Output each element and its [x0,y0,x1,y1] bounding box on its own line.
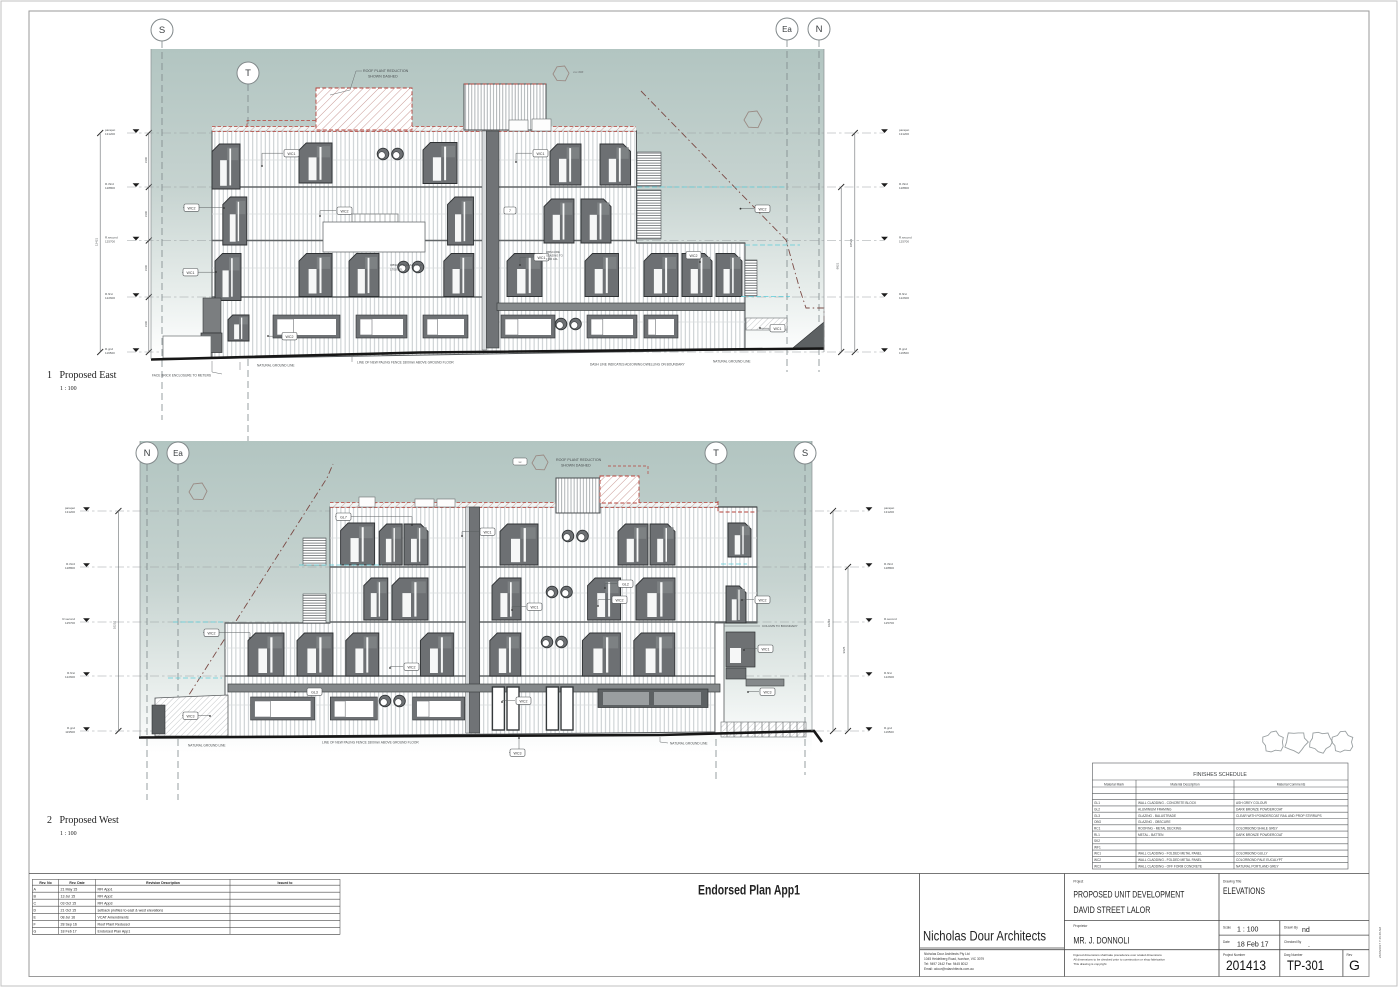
svg-text:18 Feb 17: 18 Feb 17 [61,930,77,934]
svg-text:122600: 122600 [899,296,909,300]
svg-text:3100: 3100 [144,156,148,163]
svg-text:WC1: WC1 [762,647,770,651]
svg-text:WC2: WC2 [759,207,767,211]
svg-text:COLORBOND PALE EUCALYPT: COLORBOND PALE EUCALYPT [1236,858,1283,862]
svg-text:setback profiles to east & wes: setback profiles to east & west elevatio… [98,909,164,913]
svg-text:NATURAL GROUND LINE: NATURAL GROUND LINE [257,364,295,368]
svg-text:T: T [245,68,251,79]
svg-text:GL3: GL3 [311,690,318,694]
svg-text:.: . [1308,942,1310,949]
svg-text:13 Jul 15: 13 Jul 15 [61,895,76,899]
svg-text:WC2: WC2 [1094,858,1101,862]
svg-text:COLORBOND GULLY: COLORBOND GULLY [1236,852,1269,856]
svg-text:WC2: WC2 [286,335,294,339]
svg-text:OBSCURE GLAZING TO: OBSCURE GLAZING TO [390,263,424,267]
svg-text:SHOWN DASHED: SHOWN DASHED [368,75,398,79]
svg-text:WC2: WC2 [188,206,196,210]
svg-text:Email: odour@ndarchitects.com: Email: odour@ndarchitects.com.au [924,967,974,971]
svg-text:nd: nd [1302,927,1310,934]
svg-text:WALL CLADDING - FOLDED METAL P: WALL CLADDING - FOLDED METAL PANEL [1138,858,1202,862]
svg-text:N: N [144,448,151,459]
svg-text:PROPOSED UNIT DEVELOPMENT: PROPOSED UNIT DEVELOPMENT [1073,890,1184,901]
svg-text:119500: 119500 [884,730,894,734]
svg-text:10210: 10210 [113,620,117,629]
svg-text:Tel: 9497 2442 Fax: 9445 8: Tel: 9497 2442 Fax: 9445 8012 [924,962,968,966]
svg-text:C: C [34,902,37,906]
svg-text:08 Jul 16: 08 Jul 16 [61,916,76,920]
svg-text:GL7: GL7 [340,515,347,519]
svg-text:NATURAL GROUND LINE: NATURAL GROUND LINE [713,360,751,364]
svg-text:131200: 131200 [884,510,894,514]
svg-text:WF1: WF1 [1094,845,1101,849]
svg-text:WC3: WC3 [514,751,522,755]
svg-text:TP-301: TP-301 [1287,957,1324,973]
svg-text:Material Mark: Material Mark [1104,782,1124,786]
svg-text:125700: 125700 [899,240,909,244]
svg-text:Drawing Title: Drawing Title [1223,880,1242,884]
svg-text:201413: 201413 [1226,957,1266,973]
svg-text:S: S [802,448,808,459]
svg-text:DASH LINE INDICATES ADJOINING: DASH LINE INDICATES ADJOINING DWELLING O… [590,363,686,367]
svg-text:21 May 15: 21 May 15 [61,888,78,892]
svg-text:S: S [159,25,165,36]
svg-text:128800: 128800 [899,186,909,190]
svg-text:This drawing is copyright: This drawing is copyright [1073,962,1106,966]
svg-text:Nicholas Dour Architects: Nicholas Dour Architects [923,929,1046,944]
svg-text:SHOWN DASHED: SHOWN DASHED [561,464,591,468]
svg-text:125700: 125700 [884,621,894,625]
svg-text:131200: 131200 [65,510,75,514]
svg-text:Figured dimensions shall take: Figured dimensions shall take precedence… [1073,953,1162,957]
svg-text:122600: 122600 [884,675,894,679]
svg-text:xx: xx [519,460,523,464]
svg-text:WC3: WC3 [764,690,772,694]
svg-text:ALUMINIUM FRAMING: ALUMINIUM FRAMING [1138,808,1172,812]
svg-text:GLAZING - OBSCURE: GLAZING - OBSCURE [1138,820,1171,824]
svg-text:RFI App3: RFI App3 [98,902,113,906]
svg-text:26/06/2017 7:46:48 AM: 26/06/2017 7:46:48 AM [1378,926,1382,958]
svg-text:Roof Plant Reduced: Roof Plant Reduced [98,923,130,927]
svg-text:119500: 119500 [65,730,75,734]
svg-text:131200: 131200 [899,132,909,136]
svg-text:WALL CLADDING - FOLDED METAL P: WALL CLADDING - FOLDED METAL PANEL [1138,852,1202,856]
svg-text:G: G [34,930,37,934]
svg-text:Rev. Date: Rev. Date [69,881,84,885]
svg-text:Endorsed Plan App1: Endorsed Plan App1 [698,883,800,898]
svg-text:G: G [1349,957,1360,973]
svg-text:Drawn By: Drawn By [1284,926,1298,930]
svg-text:DAVID STREET LALOR: DAVID STREET LALOR [1073,905,1150,916]
svg-text:ROOF PLANT REDUCTION: ROOF PLANT REDUCTION [556,458,602,462]
svg-text:GL2: GL2 [622,582,629,586]
svg-text:WC3: WC3 [1094,864,1101,868]
svg-text:RFI App1: RFI App1 [98,888,113,892]
svg-text:COLORBOND SHALE GREY: COLORBOND SHALE GREY [1236,826,1279,830]
svg-text:WC1: WC1 [187,271,195,275]
svg-text:T: T [713,448,719,459]
svg-text:10210: 10210 [827,618,831,627]
svg-text:122600: 122600 [65,675,75,679]
svg-text:1 : 100: 1 : 100 [60,386,77,392]
svg-text:125700: 125700 [65,621,75,625]
svg-text:12421: 12421 [95,237,99,246]
svg-text:10521: 10521 [849,238,853,247]
svg-text:WC3: WC3 [187,714,195,718]
svg-text:NATURAL GROUND LINE: NATURAL GROUND LINE [188,744,226,748]
svg-text:3100: 3100 [144,320,148,327]
svg-text:125700: 125700 [105,240,115,244]
svg-text:WC1: WC1 [1094,852,1101,856]
svg-text:ROOFING - METAL DECKING: ROOFING - METAL DECKING [1138,826,1182,830]
svg-text:WC2: WC2 [690,254,698,258]
svg-text:DARK BRONZE POWDERCOAT: DARK BRONZE POWDERCOAT [1236,833,1283,837]
svg-text:OBG: OBG [1094,820,1102,824]
svg-text:FINISHES SCHEDULE: FINISHES SCHEDULE [1193,772,1247,778]
svg-text:NATURAL PORTLAND GREY: NATURAL PORTLAND GREY [1236,864,1279,868]
svg-text:119500: 119500 [105,351,115,355]
svg-text:2 Proposed West: 2 Proposed West [47,815,119,826]
svg-text:1045 Heidelberg Road, Ivanhoe,: 1045 Heidelberg Road, Ivanhoe, VIC 3079 [924,957,984,961]
svg-text:LINE OF NEW PALING FENCE 1800m: LINE OF NEW PALING FENCE 1800mm ABOVE GR… [322,741,419,745]
svg-text:1700 AFL: 1700 AFL [390,268,403,272]
svg-text:GLAZING - BALUSTRADE: GLAZING - BALUSTRADE [1138,814,1176,818]
svg-text:128800: 128800 [65,566,75,570]
svg-text:Nicholas Dour Architects Pty L: Nicholas Dour Architects Pty Ltd [924,952,970,956]
svg-text:All dimensions to be checked p: All dimensions to be checked prior to co… [1073,958,1165,962]
svg-text:VCAT Amendments: VCAT Amendments [98,916,129,920]
svg-text:Material Comments: Material Comments [1277,782,1306,786]
svg-text:WC1: WC1 [484,530,492,534]
svg-text:WC2: WC2 [616,598,624,602]
svg-text:21 Oct 15: 21 Oct 15 [61,909,77,913]
svg-text:Rev. No: Rev. No [39,881,51,885]
svg-text:119500: 119500 [899,351,909,355]
svg-text:WALL CLADDING - CONCRETE BLOCK: WALL CLADDING - CONCRETE BLOCK [1138,801,1197,805]
svg-text:GL1: GL1 [1094,801,1100,805]
svg-text:3100: 3100 [144,210,148,217]
svg-text:METAL - BATTEN: METAL - BATTEN [1138,833,1164,837]
svg-text:Material Description: Material Description [1170,782,1199,786]
svg-text:WC2: WC2 [341,209,349,213]
svg-text:1 : 100: 1 : 100 [1237,927,1259,934]
svg-text:7: 7 [509,209,511,213]
svg-text:128800: 128800 [884,566,894,570]
svg-text:DARK BRONZE POWDERCOAT: DARK BRONZE POWDERCOAT [1236,808,1283,812]
svg-text:03 Oct 15: 03 Oct 15 [61,902,77,906]
svg-text:WALL CLADDING - OFF FORM CONCR: WALL CLADDING - OFF FORM CONCRETE [1138,864,1202,868]
svg-text:WC2: WC2 [208,631,216,635]
svg-text:LINE OF NEW PALING FENCE 1800m: LINE OF NEW PALING FENCE 1800mm ABOVE GR… [357,361,454,365]
svg-text:ASH GREY COLOUR: ASH GREY COLOUR [1236,801,1268,805]
svg-text:18 Feb 17: 18 Feb 17 [1237,942,1269,949]
svg-text:WC1: WC1 [774,327,782,331]
svg-text:128800: 128800 [105,186,115,190]
svg-text:WC1: WC1 [288,152,296,156]
svg-text:131200: 131200 [105,132,115,136]
svg-text:1700 AFL: 1700 AFL [546,257,558,261]
svg-text:Ea: Ea [173,449,183,458]
svg-text:WC2: WC2 [520,699,528,703]
svg-text:9821: 9821 [836,262,840,269]
svg-text:CLEAR WITH POWDERCOAT RAIL AND: CLEAR WITH POWDERCOAT RAIL AND PROP STIR… [1236,814,1322,818]
svg-text:ROOF PLANT REDUCTION: ROOF PLANT REDUCTION [363,69,409,73]
svg-text:NATURAL GROUND LINE: NATURAL GROUND LINE [670,742,708,746]
svg-text:Scale: Scale [1223,926,1231,930]
svg-text:Issued to: Issued to [278,881,293,885]
svg-text:ELEVATIONS: ELEVATIONS [1223,886,1265,897]
svg-text:Date: Date [1223,940,1230,944]
svg-text:COLUMN TO BOUNDARY: COLUMN TO BOUNDARY [762,624,798,628]
svg-text:D: D [34,909,37,913]
svg-text:GL2: GL2 [1094,808,1100,812]
svg-text:Revision Description: Revision Description [146,881,180,885]
svg-text:Endorsed Plan App1: Endorsed Plan App1 [98,930,131,934]
svg-text:RC1: RC1 [1094,826,1101,830]
svg-text:1 : 100: 1 : 100 [60,831,77,837]
svg-text:9625: 9625 [842,646,846,653]
svg-text:FACE BRICK ENCLOSURE TO METERS: FACE BRICK ENCLOSURE TO METERS [152,374,211,378]
svg-text:RFI App2: RFI App2 [98,895,113,899]
svg-text:N: N [816,24,823,35]
svg-text:Project: Project [1073,880,1083,884]
svg-text:WC2: WC2 [408,665,416,669]
svg-text:SK2: SK2 [1094,839,1100,843]
svg-text:122600: 122600 [105,296,115,300]
svg-text:WC1: WC1 [538,256,546,260]
svg-text:1 Proposed East: 1 Proposed East [47,370,117,381]
svg-text:WC1: WC1 [531,605,539,609]
svg-text:WC1: WC1 [537,152,545,156]
svg-text:WC2: WC2 [759,598,767,602]
svg-text:MR. J. DONNOLI: MR. J. DONNOLI [1073,936,1129,947]
svg-text:GL3: GL3 [1094,814,1100,818]
svg-text:28 Sep 16: 28 Sep 16 [61,923,77,927]
svg-text:RL1: RL1 [1094,833,1100,837]
svg-text:Checked By: Checked By [1284,940,1302,944]
svg-text:3100: 3100 [144,264,148,271]
svg-text:Ea: Ea [782,25,792,34]
svg-text:Proprietor: Proprietor [1073,924,1088,928]
svg-text:xxx ###: xxx ### [573,70,584,74]
